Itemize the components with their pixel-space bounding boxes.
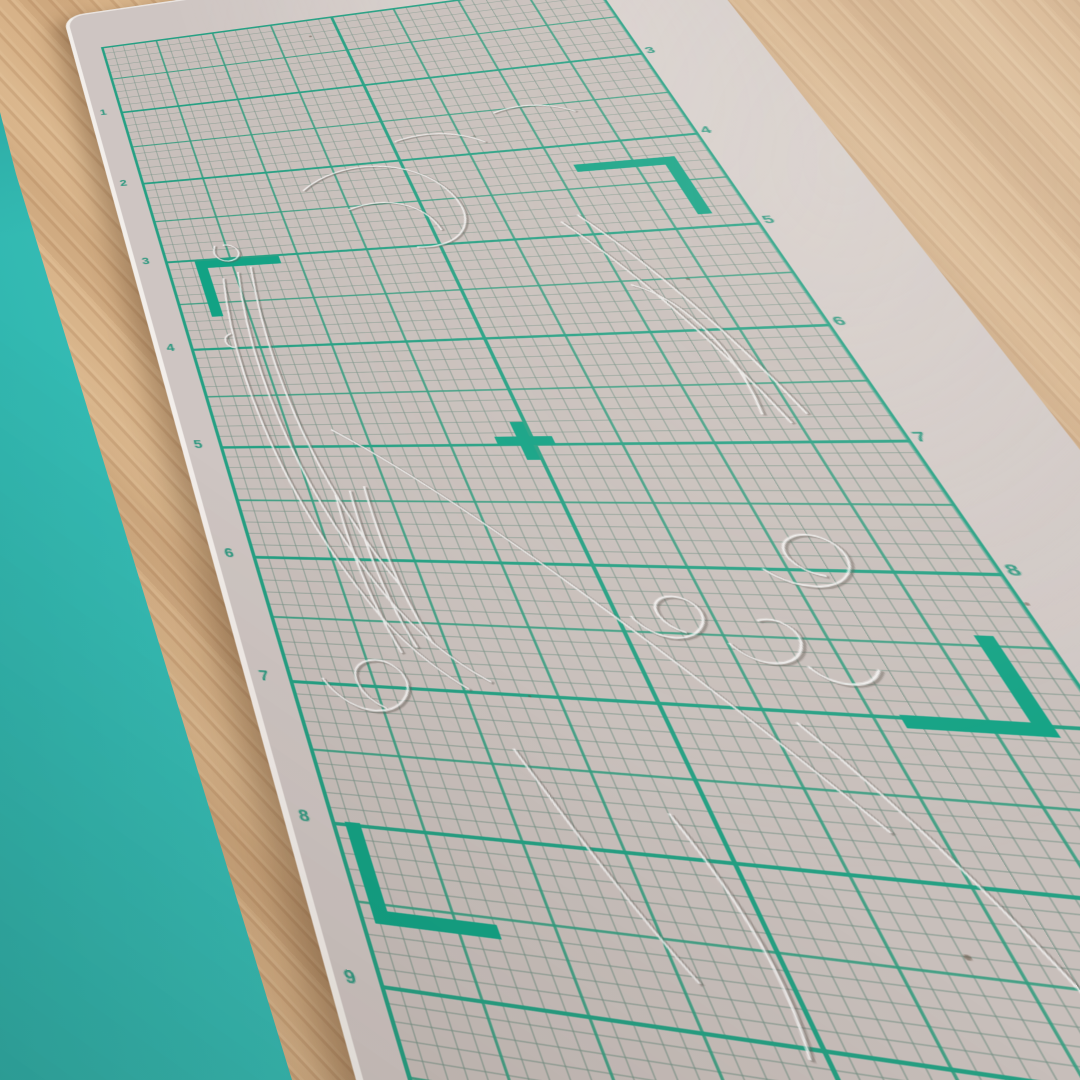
speck xyxy=(528,695,532,697)
speck xyxy=(473,135,476,136)
mat-row-label-left: 1 xyxy=(99,108,108,116)
speck xyxy=(685,278,690,280)
photo-cutting-mat-scene: 123456789 345678 xyxy=(0,0,1080,1080)
